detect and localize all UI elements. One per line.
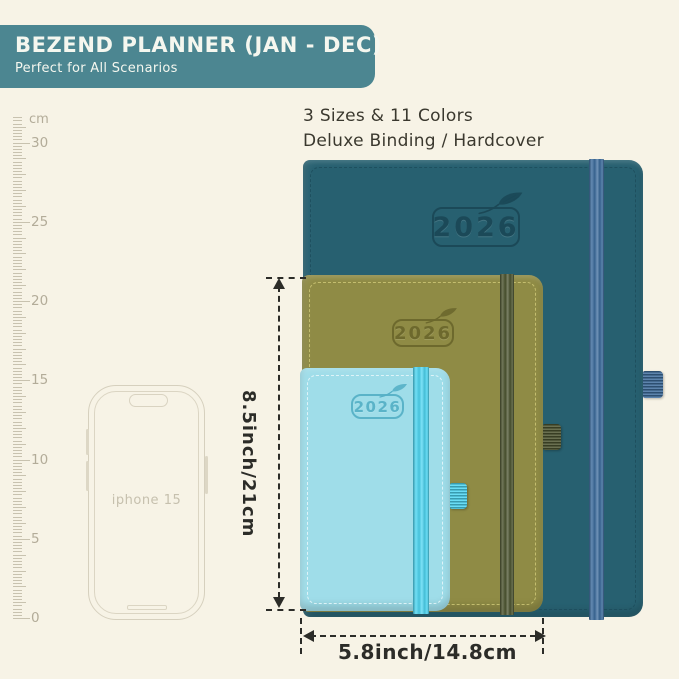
- ruler-tick: [13, 539, 30, 540]
- ruler-tick: [13, 279, 22, 280]
- width-dimension-line: [310, 635, 536, 637]
- ruler-tick: [13, 215, 22, 216]
- ruler-tick: [13, 124, 22, 125]
- ruler-tick: [13, 127, 26, 128]
- ruler-tick: [13, 263, 22, 264]
- ruler-tick: [13, 425, 22, 426]
- product-image: BEZEND PLANNER (JAN - DEC) Perfect for A…: [0, 0, 679, 679]
- ruler-tick: [13, 586, 26, 587]
- ruler-tick: [13, 409, 22, 410]
- ruler-tick: [13, 162, 22, 163]
- ruler-tick: [13, 396, 26, 397]
- ruler-tick: [13, 206, 26, 207]
- feature-line-binding: Deluxe Binding / Hardcover: [303, 129, 544, 154]
- ruler-tick: [13, 431, 22, 432]
- ruler-tick: [13, 520, 22, 521]
- ruler-tick: [13, 200, 22, 201]
- dimension-tick-bottom: [266, 609, 306, 611]
- ruler-tick: [13, 406, 22, 407]
- ruler-tick: [13, 345, 22, 346]
- ruler-tick: [13, 257, 22, 258]
- ruler-tick: [13, 526, 22, 527]
- ruler-tick: [13, 209, 22, 210]
- ruler-tick: [13, 130, 22, 131]
- arrow-down-icon: [273, 597, 285, 608]
- ruler-tick: [13, 219, 22, 220]
- ruler-tick: [13, 444, 26, 445]
- ruler-tick: [13, 317, 26, 318]
- ruler-tick: [13, 181, 22, 182]
- ruler-tick: [13, 133, 22, 134]
- ruler-tick: [13, 304, 22, 305]
- feature-text: 3 Sizes & 11 Colors Deluxe Binding / Har…: [303, 104, 544, 154]
- ruler-tick: [13, 463, 22, 464]
- ruler-tick: [13, 450, 22, 451]
- ruler-tick: [13, 532, 22, 533]
- ruler-tick: [13, 545, 22, 546]
- ruler-tick: [13, 428, 26, 429]
- ruler-number: 10: [31, 452, 48, 468]
- ruler-tick: [13, 193, 22, 194]
- product-subtitle: Perfect for All Scenarios: [15, 61, 375, 76]
- ruler-tick: [13, 190, 26, 191]
- ruler-tick: [13, 383, 22, 384]
- dimension-tick-top: [266, 277, 306, 279]
- ruler-tick: [13, 273, 22, 274]
- ruler-tick: [13, 387, 22, 388]
- ruler-tick: [13, 393, 22, 394]
- ruler-tick: [13, 368, 22, 369]
- ruler-tick: [13, 399, 22, 400]
- ruler-tick: [13, 422, 22, 423]
- ruler-tick: [13, 605, 22, 606]
- dimension-tick-left: [300, 618, 302, 654]
- ruler-tick: [13, 402, 22, 403]
- ruler-tick: [13, 507, 26, 508]
- ruler-tick: [13, 580, 22, 581]
- ruler-unit-label: cm: [29, 112, 49, 127]
- ruler-number: 20: [31, 293, 48, 309]
- year-emboss: 2026: [432, 207, 520, 247]
- ruler-tick: [13, 494, 22, 495]
- ruler-tick: [13, 536, 22, 537]
- ruler-tick: [13, 472, 22, 473]
- ruler-tick: [13, 523, 26, 524]
- ruler-number: 5: [31, 531, 40, 547]
- ruler-tick: [13, 491, 26, 492]
- elastic-band: [500, 274, 514, 615]
- ruler-tick: [13, 498, 22, 499]
- ruler-tick: [13, 574, 22, 575]
- ruler-tick: [13, 177, 22, 178]
- ruler-tick: [13, 231, 22, 232]
- ruler-number: 25: [31, 214, 48, 230]
- ruler-tick: [13, 241, 22, 242]
- ruler-tick: [13, 529, 22, 530]
- ruler-tick: [13, 301, 30, 302]
- volume-button: [86, 461, 89, 491]
- ruler-tick: [13, 158, 26, 159]
- ruler-tick: [13, 418, 22, 419]
- ruler-tick: [13, 247, 22, 248]
- ruler-tick: [13, 412, 26, 413]
- ruler-tick: [13, 333, 26, 334]
- ruler-tick: [13, 466, 22, 467]
- ruler-tick: [13, 253, 26, 254]
- ruler-tick: [13, 203, 22, 204]
- ruler-tick: [13, 139, 22, 140]
- ruler-tick: [13, 380, 30, 381]
- ruler-tick: [13, 323, 22, 324]
- pen-loop: [643, 371, 663, 398]
- ruler-tick: [13, 602, 26, 603]
- ruler-tick: [13, 222, 30, 223]
- ruler-tick: [13, 212, 22, 213]
- ruler-tick: [13, 184, 22, 185]
- pen-loop: [450, 483, 467, 509]
- ruler-tick: [13, 117, 22, 118]
- year-emboss: 2026: [392, 319, 454, 347]
- ruler-tick: [13, 143, 30, 144]
- ruler-tick: [13, 482, 22, 483]
- ruler-tick: [13, 292, 22, 293]
- elastic-band: [589, 159, 604, 620]
- ruler-tick: [13, 561, 22, 562]
- ruler-tick: [13, 371, 22, 372]
- ruler-tick: [13, 228, 22, 229]
- ruler-tick: [13, 361, 22, 362]
- ruler-number: 15: [31, 372, 48, 388]
- ruler-tick: [13, 307, 22, 308]
- planner-small-blue: 2026: [300, 368, 450, 611]
- ruler-tick: [13, 577, 22, 578]
- ruler-tick: [13, 364, 26, 365]
- arrow-up-icon: [273, 278, 285, 289]
- ruler-tick: [13, 250, 22, 251]
- ruler-tick: [13, 352, 22, 353]
- ruler-tick: [13, 437, 22, 438]
- ruler-tick: [13, 377, 22, 378]
- ruler-tick: [13, 314, 22, 315]
- ruler-tick: [13, 168, 22, 169]
- ruler-tick: [13, 612, 22, 613]
- ruler-tick: [13, 593, 22, 594]
- iphone-outline: iphone 15: [88, 385, 205, 620]
- ruler-tick: [13, 513, 22, 514]
- ruler-tick: [13, 564, 22, 565]
- ruler-tick: [13, 234, 22, 235]
- ruler-tick: [13, 596, 22, 597]
- ruler-tick: [13, 342, 22, 343]
- ruler-number: 30: [31, 135, 48, 151]
- ruler-tick: [13, 475, 26, 476]
- ruler-tick: [13, 390, 22, 391]
- feature-line-sizes: 3 Sizes & 11 Colors: [303, 104, 544, 129]
- ruler-tick: [13, 558, 22, 559]
- ruler-tick: [13, 196, 22, 197]
- ruler-tick: [13, 567, 22, 568]
- elastic-band: [413, 367, 429, 614]
- ruler-tick: [13, 244, 22, 245]
- ruler-tick: [13, 485, 22, 486]
- ruler-tick: [13, 349, 26, 350]
- ruler-tick: [13, 295, 22, 296]
- ruler-tick: [13, 555, 26, 556]
- ruler-tick: [13, 618, 30, 619]
- ruler-tick: [13, 187, 22, 188]
- ruler-tick: [13, 374, 22, 375]
- ruler-tick: [13, 336, 22, 337]
- ruler-tick: [13, 599, 22, 600]
- ruler-tick: [13, 282, 22, 283]
- header-banner: BEZEND PLANNER (JAN - DEC) Perfect for A…: [0, 25, 375, 88]
- ruler-tick: [13, 298, 22, 299]
- ruler-tick: [13, 355, 22, 356]
- ruler-tick: [13, 146, 22, 147]
- ruler-tick: [13, 469, 22, 470]
- ruler-tick: [13, 504, 22, 505]
- ruler-tick: [13, 311, 22, 312]
- charging-port: [127, 605, 167, 610]
- ruler-tick: [13, 460, 30, 461]
- ruler-tick: [13, 447, 22, 448]
- ruler-tick: [13, 165, 22, 166]
- ruler-tick: [13, 155, 22, 156]
- ruler-tick: [13, 260, 22, 261]
- ruler-tick: [13, 510, 22, 511]
- ruler-tick: [13, 171, 22, 172]
- ruler-tick: [13, 339, 22, 340]
- ruler-tick: [13, 583, 22, 584]
- ruler-tick: [13, 434, 22, 435]
- product-title: BEZEND PLANNER (JAN - DEC): [15, 33, 375, 57]
- ruler-tick: [13, 571, 26, 572]
- height-dimension-line: [278, 286, 280, 598]
- ruler-tick: [13, 152, 22, 153]
- ruler-tick: [13, 548, 22, 549]
- ruler-tick: [13, 456, 22, 457]
- ruler-tick: [13, 266, 22, 267]
- ruler-tick: [13, 238, 26, 239]
- pen-loop: [543, 424, 561, 450]
- ruler-tick: [13, 358, 22, 359]
- ruler-tick: [13, 326, 22, 327]
- ruler-tick: [13, 501, 22, 502]
- height-dimension-label: 8.5inch/21cm: [238, 390, 259, 537]
- ruler-tick: [13, 453, 22, 454]
- dynamic-island: [129, 394, 168, 407]
- ruler-tick: [13, 415, 22, 416]
- ruler-tick: [13, 609, 22, 610]
- ruler-tick: [13, 517, 22, 518]
- arrow-right-icon: [535, 630, 546, 642]
- ruler-tick: [13, 542, 22, 543]
- ruler-tick: [13, 488, 22, 489]
- ruler-tick: [13, 136, 22, 137]
- ruler-tick: [13, 479, 22, 480]
- year-label: 2026: [432, 207, 520, 247]
- power-button: [205, 456, 208, 494]
- width-dimension-label: 5.8inch/14.8cm: [338, 640, 508, 664]
- ruler-tick: [13, 285, 26, 286]
- year-label: 2026: [392, 319, 454, 347]
- ruler-tick: [13, 120, 22, 121]
- ruler-tick: [13, 149, 22, 150]
- ruler-tick: [13, 174, 26, 175]
- year-label: 2026: [351, 394, 404, 419]
- ruler-tick: [13, 330, 22, 331]
- phone-model-label: iphone 15: [89, 493, 204, 508]
- ruler-tick: [13, 288, 22, 289]
- ruler-tick: [13, 615, 22, 616]
- year-emboss: 2026: [351, 394, 404, 419]
- ruler-tick: [13, 269, 26, 270]
- ruler-tick: [13, 225, 22, 226]
- ruler-tick: [13, 320, 22, 321]
- ruler-tick: [13, 590, 22, 591]
- volume-button: [86, 429, 89, 455]
- ruler-tick: [13, 276, 22, 277]
- ruler-number: 0: [31, 610, 40, 626]
- ruler-tick: [13, 441, 22, 442]
- arrow-left-icon: [303, 630, 314, 642]
- ruler-tick: [13, 551, 22, 552]
